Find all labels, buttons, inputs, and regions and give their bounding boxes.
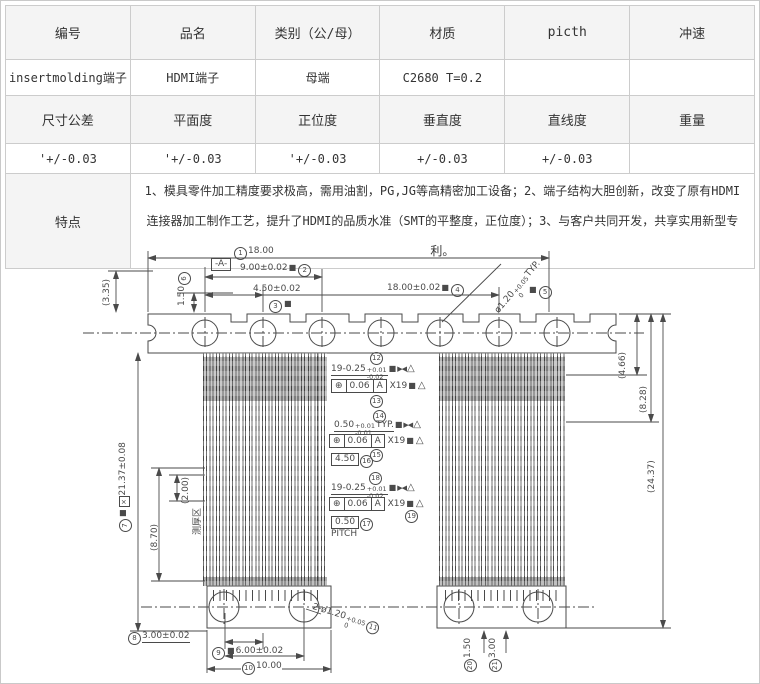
fcf-datum: A: [372, 498, 384, 510]
dim-teeth-width-1: 19-0.25+0.01-0.02■▶◀△: [331, 363, 415, 380]
fcf-position-1: ⊕0.06A X19■△: [331, 379, 426, 393]
dim-text: 19-0.25: [331, 483, 366, 493]
flag-triangle-icon: △: [413, 419, 421, 430]
bowtie-symbol-icon: ▶◀: [397, 365, 406, 373]
fcf-tolerance: 0.06: [345, 498, 372, 510]
dim-3-00-bottom: 213.00: [488, 638, 502, 673]
balloon-20: 20: [464, 659, 477, 672]
contact-band: [439, 357, 565, 401]
fcf-position-3: ⊕0.06A X19■△: [329, 497, 424, 511]
filled-square-icon: ■: [284, 299, 292, 308]
filled-square-icon: ■: [289, 263, 297, 272]
filled-square-icon: ■: [529, 285, 537, 294]
basic-dim-box: 0.50: [331, 516, 359, 529]
filled-square-icon: ■: [441, 283, 449, 292]
flag-triangle-icon: △: [407, 482, 415, 493]
dim-24-37-ref: (24.37): [647, 460, 658, 493]
balloon-21: 21: [489, 659, 502, 672]
dim-4-50: 4.50±0.02: [253, 284, 301, 295]
tie-band: [439, 577, 565, 586]
dim-text: 19-0.25: [331, 364, 366, 374]
dim-text: 9.00±0.02: [240, 263, 288, 273]
dim-8-28-ref: (8.28): [639, 386, 650, 413]
position-symbol-icon: ⊕: [330, 435, 345, 447]
dim-top-18: 118.00: [233, 246, 274, 260]
balloon-10: 10: [242, 662, 255, 675]
dim-10-00: 1010.00: [241, 661, 282, 675]
basic-dim-box: 4.50: [331, 453, 359, 466]
dim-basic-4-50: 4.5016: [331, 453, 374, 468]
position-symbol-icon: ⊕: [332, 380, 347, 392]
dim-text: 18.00±0.02: [387, 283, 440, 293]
fcf-count: X19: [390, 381, 408, 391]
datum-a-box: -A-: [211, 258, 231, 271]
balloon-8: 8: [128, 632, 141, 645]
dim-text: 3.00±0.02: [142, 631, 190, 643]
dim-4-66-ref: (4.66): [618, 352, 629, 379]
bowtie-symbol-icon: ▶◀: [403, 421, 412, 429]
fcf-count: X19: [388, 499, 406, 509]
tie-band: [203, 577, 327, 586]
balloon-9: 9: [212, 647, 225, 660]
dim-3-00: 83.00±0.02: [127, 631, 190, 645]
balloon-17: 17: [360, 518, 373, 531]
position-symbol-icon: ⊕: [330, 498, 345, 510]
balloon-3: 3: [269, 300, 282, 313]
boxed-x-icon: ×: [119, 496, 130, 507]
balloon-4: 4: [451, 284, 464, 297]
dim-text: 10.00: [256, 661, 282, 671]
tick-row-left: [213, 590, 323, 601]
fcf-datum: A: [372, 435, 384, 447]
dim-18-00-tol: 18.00±0.02■4: [387, 282, 465, 297]
contact-band: [203, 357, 327, 401]
dim-text: 6.00±0.02: [236, 646, 284, 656]
flag-triangle-icon: △: [416, 498, 424, 509]
dim-6-00: 9■6.00±0.02: [211, 645, 283, 660]
balloon-1: 1: [234, 247, 247, 260]
filled-square-icon: ■: [389, 483, 397, 492]
engineering-drawing: 118.00 -A- 9.00±0.02■2 4.50±0.02 3■ 18.0…: [1, 1, 760, 684]
balloon-2: 2: [298, 264, 311, 277]
balloon-7: 7: [119, 519, 132, 532]
balloon-13: 13: [370, 395, 383, 408]
balloon-16: 16: [360, 455, 373, 468]
filled-square-icon: ■: [227, 646, 235, 655]
filled-square-icon: ■: [406, 436, 414, 445]
thickness-zone-label: 测厚区: [193, 508, 204, 535]
filled-square-icon: ■: [395, 420, 403, 429]
dim-1-50-top: 1.506: [177, 271, 191, 306]
dim-9-00: 9.00±0.02■2: [240, 262, 312, 277]
fcf-tolerance: 0.06: [345, 435, 372, 447]
dim-text: 1.50: [463, 638, 473, 658]
drawing-lines: [1, 1, 760, 684]
flag-triangle-icon: △: [416, 435, 424, 446]
balloon-5: 5: [539, 286, 552, 299]
dim-text: 3.00: [488, 638, 498, 658]
fcf-position-2: ⊕0.06A X19■△: [329, 434, 424, 448]
fcf-count: X19: [388, 436, 406, 446]
dim-suffix: TYP.: [376, 420, 394, 430]
filled-square-icon: ■: [389, 364, 397, 373]
dim-8-70-ref: (8.70): [150, 524, 161, 551]
balloon-5-group: ■5: [528, 284, 553, 299]
flag-triangle-icon: △: [407, 363, 415, 374]
dim-1-50-bottom: 201.50: [463, 638, 477, 673]
flag-triangle-icon: △: [418, 380, 426, 391]
balloon-11: 11: [365, 620, 381, 636]
fcf-datum: A: [374, 380, 386, 392]
dim-3-35-ref: (3.35): [102, 279, 113, 306]
dim-text: 18.00: [248, 246, 274, 256]
terminal-teeth-right: [439, 353, 565, 586]
fcf-tolerance: 0.06: [347, 380, 374, 392]
filled-square-icon: ■: [118, 509, 127, 517]
dim-text: 1.50: [177, 286, 187, 306]
spec-sheet-page: 编号 品名 类别（公/母） 材质 picth 冲速 insertmolding端…: [0, 0, 760, 684]
balloon-19: 19: [405, 510, 418, 523]
balloon-6: 6: [178, 272, 191, 285]
dim-2-00-ref: (2.00): [181, 477, 192, 504]
dim-21-37: 7■×21.37±0.08: [117, 442, 132, 533]
balloon-3-group: 3■: [268, 298, 293, 313]
terminal-teeth-left: [203, 353, 327, 586]
tick-row-right: [445, 590, 557, 601]
bowtie-symbol-icon: ▶◀: [397, 484, 406, 492]
dim-text: 21.37±0.08: [118, 442, 128, 495]
filled-square-icon: ■: [408, 381, 416, 390]
pitch-label: PITCH: [331, 529, 357, 540]
filled-square-icon: ■: [406, 499, 414, 508]
dim-text: 0.50: [334, 420, 354, 430]
